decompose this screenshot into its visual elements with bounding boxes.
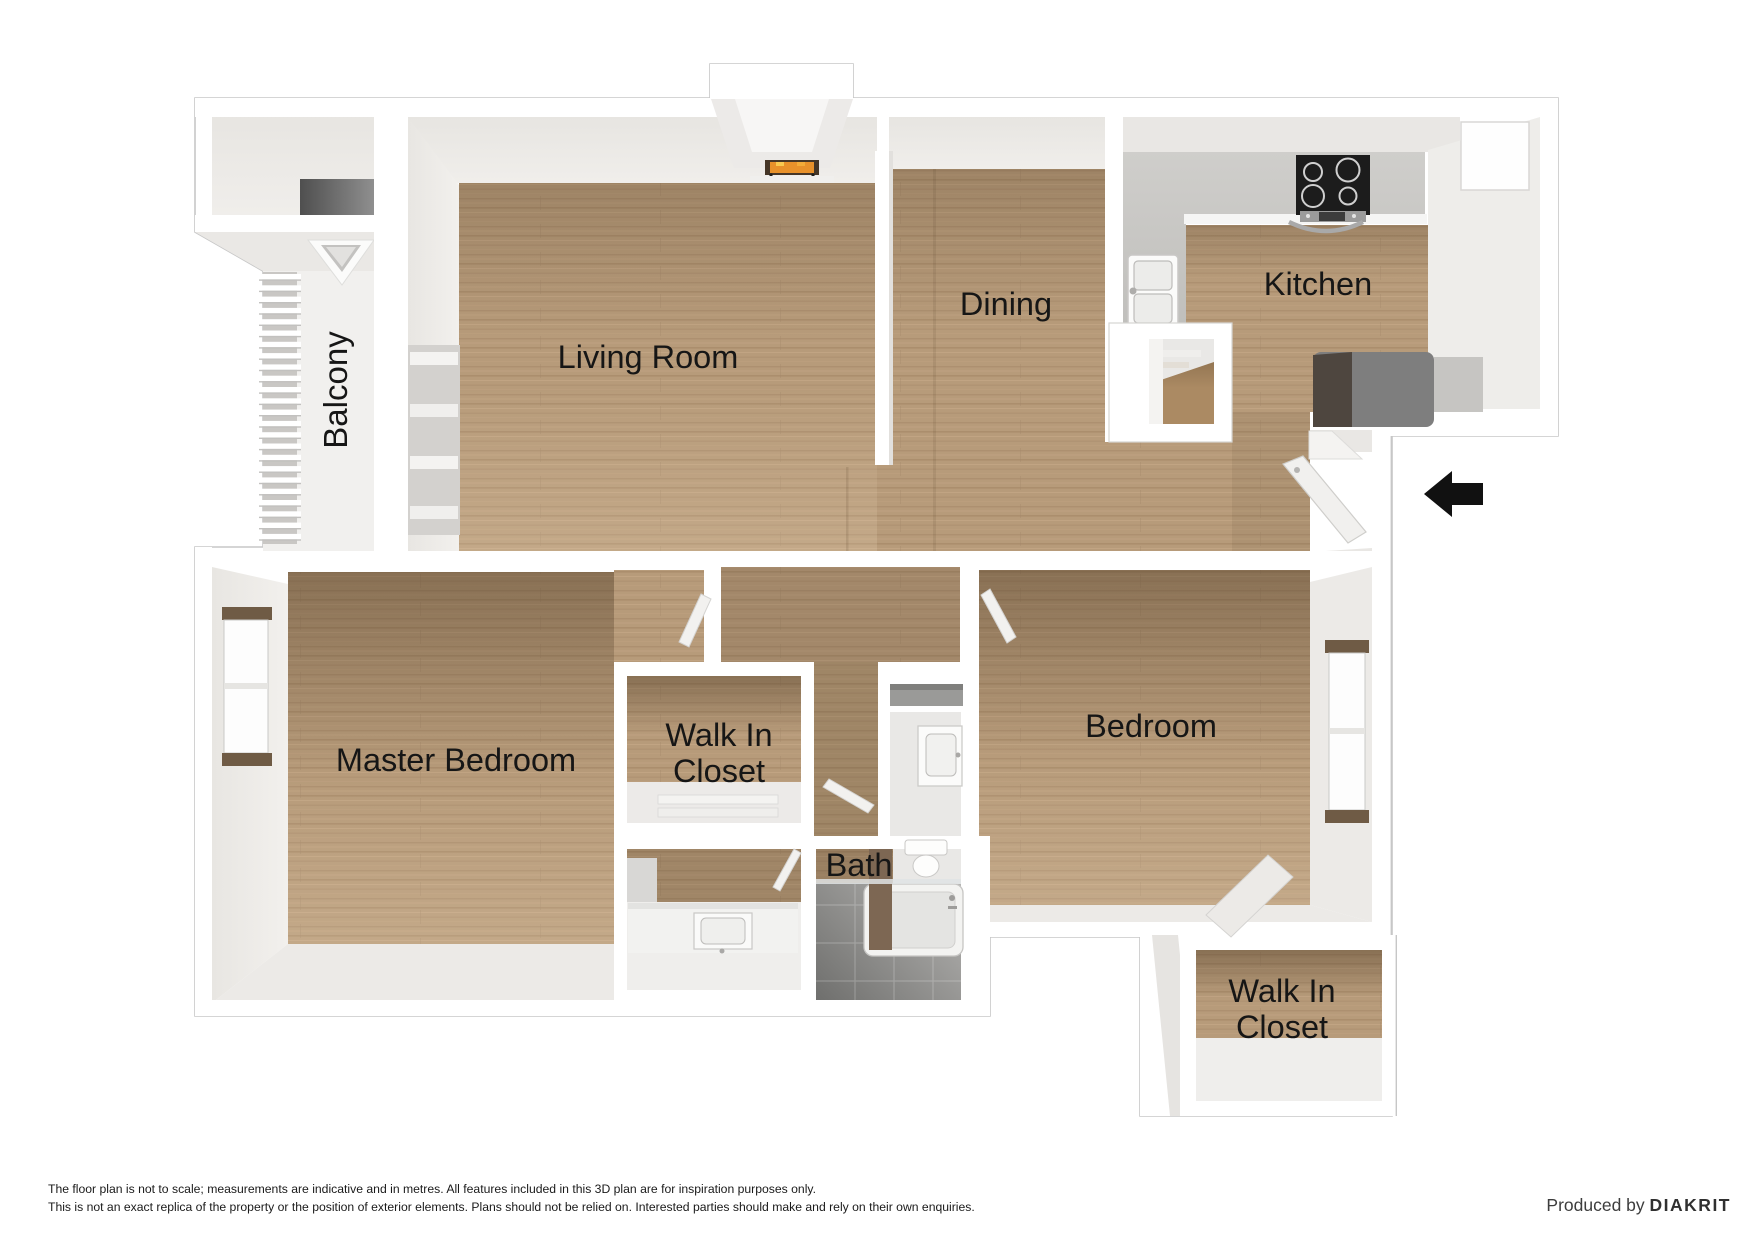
svg-text:Bath: Bath xyxy=(826,847,893,883)
svg-text:This is not an exact replica o: This is not an exact replica of the prop… xyxy=(48,1200,975,1214)
svg-text:Walk In: Walk In xyxy=(665,717,772,753)
svg-text:Produced by DIAKRIT: Produced by DIAKRIT xyxy=(1546,1195,1731,1215)
svg-text:Balcony: Balcony xyxy=(317,331,354,449)
svg-text:Closet: Closet xyxy=(673,753,765,789)
svg-text:Living Room: Living Room xyxy=(558,339,739,375)
svg-text:Kitchen: Kitchen xyxy=(1264,266,1372,302)
svg-text:Closet: Closet xyxy=(1236,1009,1328,1045)
svg-text:Master Bedroom: Master Bedroom xyxy=(336,742,576,778)
svg-text:Dining: Dining xyxy=(960,286,1052,322)
svg-text:The floor plan is not to scale: The floor plan is not to scale; measurem… xyxy=(48,1182,816,1196)
svg-text:Bedroom: Bedroom xyxy=(1085,708,1217,744)
svg-text:Walk In: Walk In xyxy=(1228,973,1335,1009)
